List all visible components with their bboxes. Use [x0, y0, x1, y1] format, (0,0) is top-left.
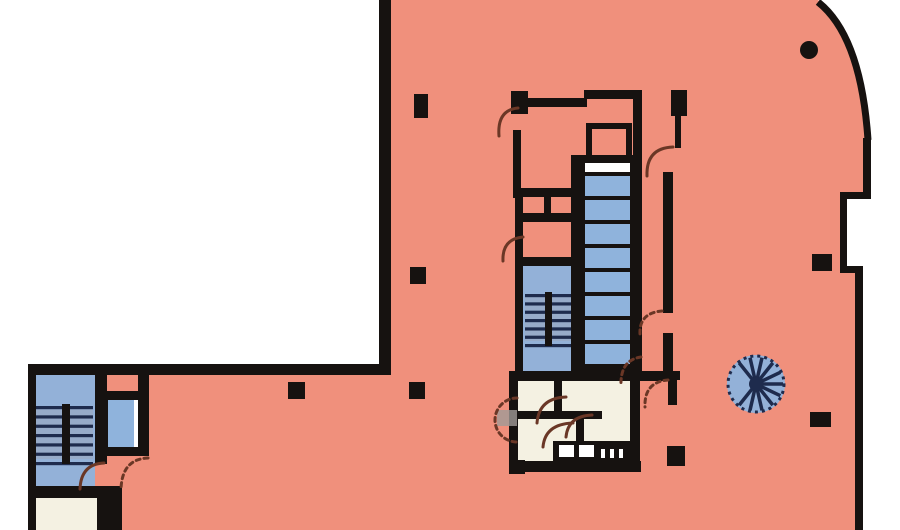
elevator-car-left-core [108, 400, 134, 447]
elevator-car [585, 272, 630, 292]
column [410, 267, 426, 284]
wall [634, 158, 642, 377]
stair-divider-wall [62, 404, 70, 464]
elevator-car [585, 344, 630, 364]
wall [633, 98, 642, 160]
wall [663, 172, 673, 313]
wall [101, 391, 108, 456]
column [812, 254, 832, 271]
elevator-car [585, 320, 630, 340]
spiral-staircase-newel [749, 377, 763, 391]
floor-plan-drawing [0, 0, 900, 530]
wall [571, 155, 582, 377]
wall [664, 371, 680, 380]
wall [28, 364, 36, 530]
small-room-main-core-top [592, 129, 626, 155]
column [414, 94, 428, 118]
restroom-fixture [610, 449, 614, 458]
column [288, 382, 305, 399]
wall [675, 114, 681, 148]
floor-plan-page [0, 0, 900, 530]
restroom-fixture [601, 449, 605, 458]
wall [668, 379, 677, 405]
wall [28, 364, 391, 375]
wall [101, 391, 149, 400]
stair-divider-wall [545, 292, 552, 346]
column [509, 460, 525, 474]
wall [515, 213, 577, 222]
elevator-car [585, 296, 630, 316]
wall [515, 196, 523, 376]
elevator-car [585, 176, 630, 196]
wall [840, 192, 847, 272]
elevator-car [585, 224, 630, 244]
wall [513, 130, 521, 198]
wall [515, 188, 577, 197]
wall [101, 447, 149, 456]
restroom-fixture [579, 445, 594, 457]
wall [863, 138, 871, 198]
wall [379, 0, 391, 370]
wall [663, 333, 673, 375]
round-column [800, 41, 818, 59]
column [667, 446, 685, 466]
wall [509, 461, 641, 472]
door-leaf [497, 410, 517, 426]
column [409, 382, 425, 399]
wall [28, 486, 105, 498]
column [810, 412, 831, 427]
room-left-core-bottom [34, 498, 97, 530]
wall [515, 257, 577, 266]
wall [584, 90, 642, 99]
restroom-fixture [559, 445, 574, 457]
restroom-fixture [619, 449, 623, 458]
elevator-car [585, 248, 630, 268]
elevator-car [585, 200, 630, 220]
wall [671, 90, 687, 116]
wall [509, 371, 674, 381]
wall [142, 391, 149, 456]
wall [517, 98, 587, 107]
elevator-car [585, 163, 630, 172]
wall [855, 266, 863, 530]
wall [630, 371, 640, 472]
